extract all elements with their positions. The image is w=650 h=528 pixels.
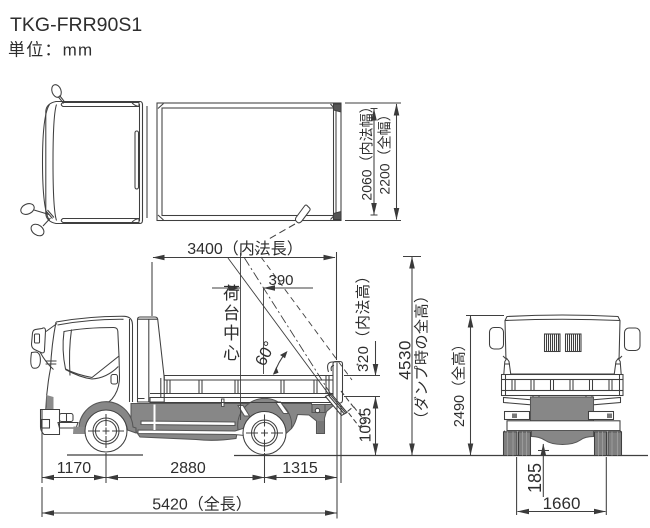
svg-text:4530: 4530 [395, 340, 414, 380]
svg-text:1095: 1095 [358, 408, 375, 442]
svg-text:台: 台 [223, 304, 240, 323]
svg-text:荷: 荷 [223, 284, 240, 303]
svg-text:（ダンプ時の全高）: （ダンプ時の全高） [412, 287, 430, 426]
svg-text:単位：mm: 単位：mm [8, 41, 93, 60]
svg-text:390: 390 [268, 272, 293, 289]
svg-text:2200（全幅）: 2200（全幅） [377, 107, 393, 194]
svg-text:3400（内法長）: 3400（内法長） [187, 240, 303, 258]
svg-text:1660: 1660 [543, 494, 581, 513]
svg-text:2880: 2880 [170, 460, 206, 477]
svg-text:2060（内法幅）: 2060（内法幅） [359, 99, 375, 200]
svg-text:1170: 1170 [57, 460, 92, 477]
svg-text:心: 心 [223, 344, 240, 363]
svg-text:60°: 60° [252, 339, 279, 369]
svg-text:5420（全長）: 5420（全長） [152, 496, 252, 514]
svg-text:2490（全高）: 2490（全高） [450, 337, 468, 427]
svg-text:1315: 1315 [282, 460, 318, 477]
svg-text:TKG-FRR90S1: TKG-FRR90S1 [10, 14, 142, 36]
svg-text:320（内法高）: 320（内法高） [355, 268, 372, 372]
svg-text:185: 185 [525, 463, 545, 493]
svg-text:中: 中 [223, 324, 240, 343]
